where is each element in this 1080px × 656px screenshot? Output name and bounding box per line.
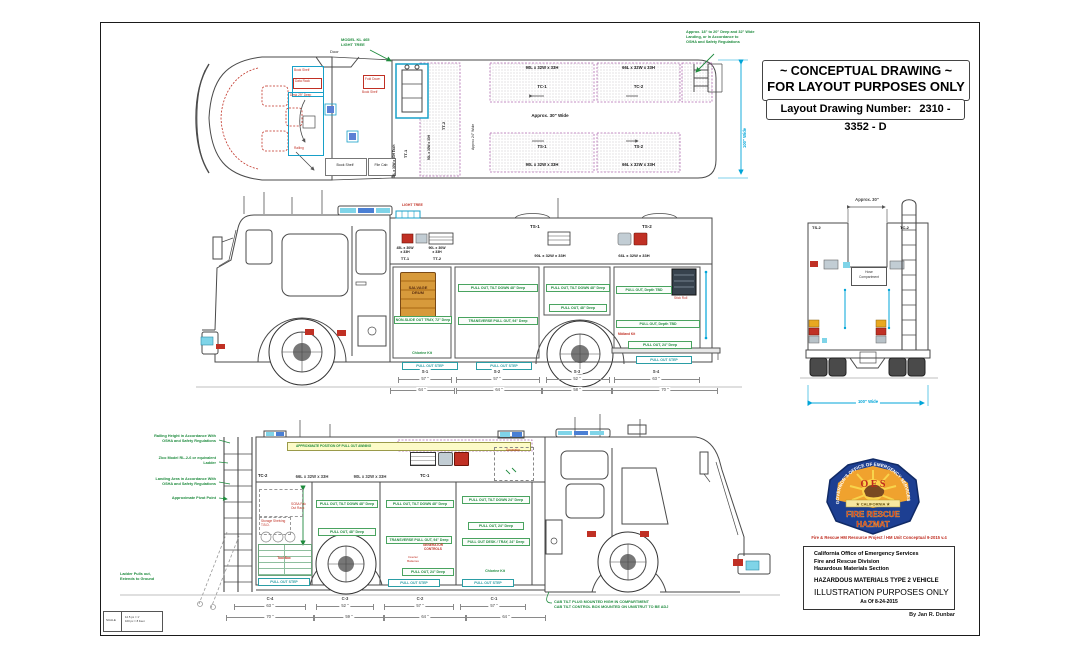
side-ts2-size: 66L x 32W x 33H xyxy=(590,254,678,259)
side-s1-tray-strip: NON-SLIDE OUT TRAY, 72" Deep xyxy=(394,316,452,324)
rear-compartment-box: Hose Compartment xyxy=(851,267,887,286)
note-ladder-pulls-out: Ladder Pulls out, Extends to Ground xyxy=(120,572,200,582)
side-s3-pull-strip: PULL OUT, 48" Deep xyxy=(549,304,607,312)
note-railing-height: Railing Height in Accordance With OSHA a… xyxy=(118,434,216,444)
plan-railing: Railing xyxy=(294,147,304,151)
c2-tilt-strip: PULL OUT, TILT DOWN 48" Deep xyxy=(386,500,454,508)
side-dim-w1-2: 57 " xyxy=(491,376,502,381)
plan-book-shelf-2: Book Shelf xyxy=(362,91,377,95)
credits-org-3: Hazardous Materials Section xyxy=(814,566,954,574)
c1-tilt-strip: PULL OUT, TILT DOWN 24" Deep xyxy=(462,496,530,504)
bottom-tc1: TC-1 xyxy=(420,474,429,479)
side-dim-w2-3: 58 " xyxy=(571,387,582,392)
plan-book-shelf-3: Book Shelf xyxy=(325,163,365,167)
side-tt1-size: 45L x 30W x 33H xyxy=(392,246,418,254)
plan-desk-label: Desk 29" Deep xyxy=(290,94,311,98)
scba-rack-label: SCBA Pak Out Rack xyxy=(291,502,306,510)
side-dim-w2-2: 64 " xyxy=(493,387,504,392)
plan-light-tree-note: MODEL KL 465 LIGHT TREE xyxy=(341,38,370,47)
side-s2-tilt-strip: PULL OUT, TILT DOWN 48" Deep xyxy=(458,284,538,292)
title-block: ~ CONCEPTUAL DRAWING ~ FOR LAYOUT PURPOS… xyxy=(762,60,970,101)
plan-aisle: Approx. 30" Wide xyxy=(495,113,605,118)
tool-box-label: Tool Box xyxy=(275,556,292,560)
bottom-size-66: 66L x 32W x 33H xyxy=(294,474,331,479)
c1-desk-tray-strip: PULL OUT DESK / TRAY, 24" Deep xyxy=(462,538,530,546)
plan-file-cab: File Cab xyxy=(368,163,394,167)
credits-box: California Office of Emergency Services … xyxy=(803,546,955,610)
plan-tc2-size: 66L x 32W x 33H xyxy=(597,66,680,71)
side-dim-w2-1: 64 " xyxy=(416,387,427,392)
generator-controls-label: GENERATOR CONTROLS xyxy=(416,543,450,551)
bottom-step-c2: PULL OUT STEP xyxy=(388,579,440,587)
plan-tt2-size: 90L x 30W x 33H xyxy=(428,90,432,160)
side-step-3: PULL OUT STEP xyxy=(636,356,692,364)
bottom-gray-light xyxy=(438,452,453,466)
side-midland-kit: Midland Kit xyxy=(618,333,635,337)
bottom-size-90: 90L x 32W x 33H xyxy=(352,474,389,479)
rear-tc2: TC-2 xyxy=(900,226,909,231)
rear-width-dim: 100" Wide xyxy=(856,399,880,404)
side-dim-w1-1: 57 " xyxy=(419,376,430,381)
side-s4-tbd-strip-1: PULL OUT, Depth TBD xyxy=(616,286,672,294)
bottom-dim-w1-2: 52 " xyxy=(339,603,350,608)
rear-ts2: TS-2 xyxy=(812,226,821,231)
author-credit: By Jan R. Dunbar xyxy=(885,612,955,618)
salvage-drum-label: SALVAGE DRUM xyxy=(401,286,435,296)
badge-california-text: ★ CALIFORNIA ★ xyxy=(856,502,890,507)
side-bay-id-3: S-3 xyxy=(572,369,583,374)
credits-purpose: ILLUSTRATION PURPOSES ONLY xyxy=(814,587,954,597)
credits-org-2: Fire and Rescue Division xyxy=(814,559,954,567)
side-dim-w2-4: 70 " xyxy=(659,387,670,392)
side-bay-id-2: S-2 xyxy=(492,369,503,374)
plan-width-24: Approx 24" Wide xyxy=(471,90,475,150)
bottom-chlorine-kit: Chlorine Kit xyxy=(470,569,520,573)
c3-tilt-strip: PULL OUT, TILT DOWN 48" Deep xyxy=(316,500,378,508)
rear-compartment-label: Hose Compartment xyxy=(852,270,886,280)
bottom-dim-w1-1: 63 " xyxy=(264,603,275,608)
salvage-drum: SALVAGE DRUM xyxy=(400,272,436,320)
side-dim-w1-4: 63 " xyxy=(650,376,661,381)
bottom-rack-icon xyxy=(410,452,436,466)
drawing-number-block: Layout Drawing Number: 2310 - 3352 - D xyxy=(766,99,965,120)
bottom-bay-id-1: C-4 xyxy=(265,596,276,601)
scale-line-2: 100 px = 8 Feet xyxy=(125,620,145,624)
side-tt2: TT-2 xyxy=(422,257,452,262)
rear-view-linework xyxy=(800,200,938,406)
side-chlorine-kit: Chlorine Kit xyxy=(396,351,448,355)
plan-book-shelf-1: Book Shelf xyxy=(294,69,309,73)
bottom-bay-id-2: C-3 xyxy=(340,596,351,601)
side-tt2-size: 90L x 30W x 33H xyxy=(422,246,452,254)
note-pivot-point: Approximate Pivot Point xyxy=(118,496,216,500)
plan-fold-down: Fold Down xyxy=(365,78,380,82)
drawing-sheet: GOVERNOR'S OFFICE OF EMERGENCY SERVICES … xyxy=(0,0,1080,656)
side-bay-id-1: S-1 xyxy=(420,369,431,374)
side-light-tree: LIGHT TREE xyxy=(402,203,423,207)
side-ts1: TS-1 xyxy=(530,224,540,229)
c4-drawers xyxy=(258,544,312,576)
bottom-step-c4: PULL OUT STEP xyxy=(258,578,310,586)
plan-ts1: TS-1 xyxy=(490,145,594,150)
note-zico-ladder: Zico Model RL-2-6 or equivalent Ladder xyxy=(118,456,216,466)
bottom-bay-id-3: C-2 xyxy=(415,596,426,601)
bottom-dim-w2-2: 59 " xyxy=(343,614,354,619)
plan-door-label: Door xyxy=(330,50,339,55)
bottom-bay-id-4: C-1 xyxy=(489,596,500,601)
note-landing-area: Landing Area in Accordance With OSHA and… xyxy=(118,477,216,487)
side-s2-transverse-strip: TRANSVERSE PULL OUT, 94" Deep xyxy=(458,317,538,325)
bottom-dim-w2-1: 70 " xyxy=(264,614,275,619)
badge-hazmat-text: HAZMAT xyxy=(856,520,889,529)
plan-tc1-size: 90L x 32W x 33H xyxy=(490,66,594,71)
side-stick-roll: Stick Roll xyxy=(674,297,687,301)
bottom-dim-w2-4: 64 " xyxy=(500,614,511,619)
cab-tilt-note: CAB TILT PLUG MOUNTED HIGH IN COMPARTMEN… xyxy=(554,600,668,610)
plan-data-rack: Data Rack xyxy=(295,80,310,84)
title-line-2: FOR LAYOUT PURPOSES ONLY xyxy=(763,79,969,94)
scale-label: SCALE xyxy=(104,612,122,631)
side-ts1-size: 90L x 32W x 33H xyxy=(510,254,590,259)
plan-tt2: TT-2 xyxy=(442,110,447,130)
side-s3-tilt-strip: PULL OUT, TILT DOWN 48" Deep xyxy=(546,284,610,292)
inverter-batteries-label: Inverter Batteries xyxy=(402,556,424,564)
plan-landing-note: Approx. 18" to 20" Deep and 32" Wide Lan… xyxy=(686,30,754,45)
credits-org-1: California Office of Emergency Services xyxy=(814,551,954,559)
side-s4-tbd-strip-2: PULL OUT, Depth TBD xyxy=(616,320,700,328)
credits-as-of: As Of 8-24-2015 xyxy=(814,599,944,605)
plan-ts2-size: 66L x 32W x 33H xyxy=(597,163,680,168)
side-bay-id-4: S-4 xyxy=(651,369,662,374)
plan-tt1-size: 45L x 30W x 33H Each xyxy=(393,120,397,178)
generator-label: Generator xyxy=(494,449,532,453)
credits-vehicle: HAZARDOUS MATERIALS TYPE 2 VEHICLE xyxy=(814,578,954,584)
bottom-dim-w1-4: 57 " xyxy=(488,603,499,608)
badge-oes-text: O E S xyxy=(860,479,885,490)
side-dim-w1-3: 52 " xyxy=(571,376,582,381)
oes-badge: GOVERNOR'S OFFICE OF EMERGENCY SERVICES … xyxy=(827,459,919,534)
side-s4-pull24-strip: PULL OUT, 24" Deep xyxy=(628,341,692,349)
rear-top-dim: Approx. 30" xyxy=(853,197,881,202)
plan-tc2: TC-2 xyxy=(597,85,680,90)
plan-width-100: 100" Wide xyxy=(743,92,748,148)
plan-tc1: TC-1 xyxy=(490,85,594,90)
plan-tt1: TT-1 xyxy=(404,138,409,158)
side-ts2: TS-2 xyxy=(642,224,652,229)
bottom-dim-w2-3: 64 " xyxy=(419,614,430,619)
title-line-1: ~ CONCEPTUAL DRAWING ~ xyxy=(763,64,969,79)
badge-fire-rescue-text: FIRE RESCUE xyxy=(846,510,900,519)
drawing-number-label: Layout Drawing Number: xyxy=(780,103,911,115)
plan-ts2: TS-2 xyxy=(597,145,680,150)
scale-box: SCALE 12.5 px = 1' 100 px = 8 Feet xyxy=(103,611,163,632)
plan-ts1-size: 90L x 32W x 33H xyxy=(490,163,594,168)
bottom-red-light xyxy=(454,452,469,466)
bottom-step-c1: PULL OUT STEP xyxy=(462,579,514,587)
project-line: Fire & Rescue HM Resource Project / HM U… xyxy=(795,536,963,541)
side-step-2: PULL OUT STEP xyxy=(476,362,532,370)
storage-shelving-label: Storage Shelving T.B.D. xyxy=(261,519,285,527)
side-tt1: TT-1 xyxy=(392,257,418,262)
c2-pull24-strip: PULL OUT, 24" Deep xyxy=(402,568,454,576)
bottom-dim-w1-3: 57 " xyxy=(414,603,425,608)
c1-pull-strip: PULL OUT, 24" Deep xyxy=(468,522,524,530)
bottom-tc2: TC-2 xyxy=(258,474,267,479)
c3-pull-strip: PULL OUT, 48" Deep xyxy=(318,528,376,536)
